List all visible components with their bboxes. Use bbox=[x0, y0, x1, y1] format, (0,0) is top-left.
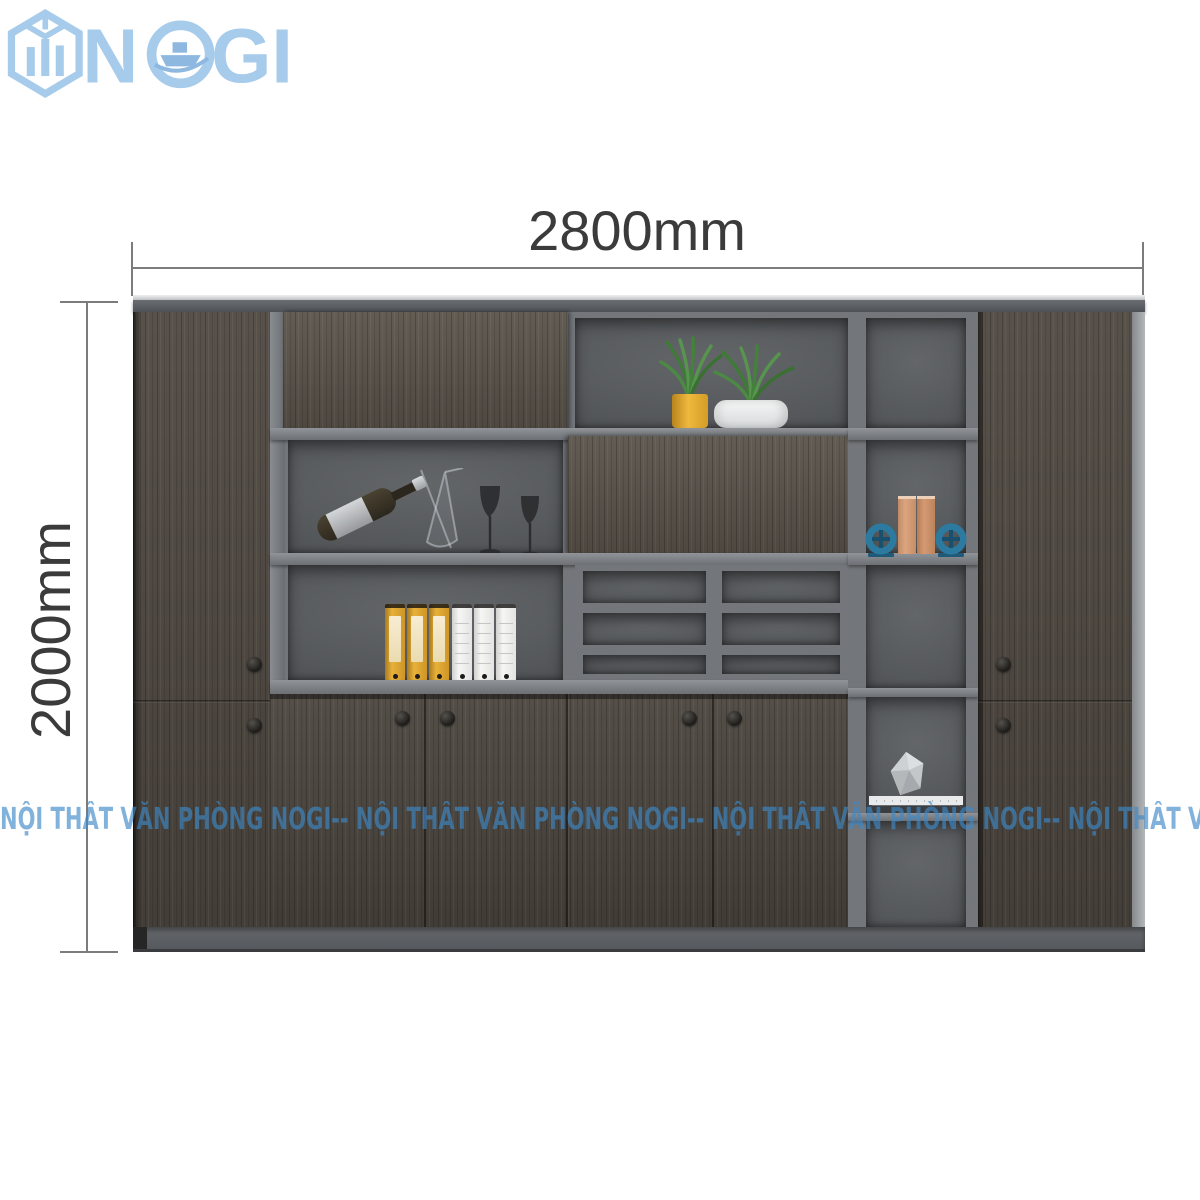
width-dimension-tick-right bbox=[1142, 242, 1144, 296]
height-dimension-line bbox=[86, 302, 88, 952]
product-image: N GI 2800mm 2000mm bbox=[0, 0, 1200, 1200]
book bbox=[898, 496, 916, 554]
door-knob bbox=[996, 657, 1011, 672]
door-top-shadow bbox=[270, 694, 856, 699]
watermark-band: NỘI THẤT VĂN PHÒNG NOGI-- NỘI THẤT VĂN P… bbox=[0, 801, 1200, 838]
cabinet-top-rail bbox=[133, 300, 1145, 312]
left-door-seam bbox=[133, 700, 270, 703]
logo-letter-n: N bbox=[82, 14, 138, 99]
width-dimension-tick-left bbox=[131, 242, 133, 296]
binder-white bbox=[474, 604, 494, 688]
display-cubby-empty bbox=[866, 318, 966, 428]
plant-in-white-pot bbox=[705, 344, 797, 404]
door-knob bbox=[996, 718, 1011, 733]
binder-hole bbox=[460, 674, 465, 679]
pigeonhole-slot bbox=[722, 571, 840, 603]
shelf-bar bbox=[848, 688, 978, 697]
shelf-bar bbox=[270, 680, 856, 694]
binder-hole bbox=[415, 674, 420, 679]
binder-hole bbox=[482, 674, 487, 679]
pigeonhole-grid bbox=[575, 565, 848, 680]
pigeonhole-slot bbox=[722, 613, 840, 645]
round-bookend bbox=[935, 522, 967, 558]
binder-hole bbox=[393, 674, 398, 679]
binder-hole bbox=[437, 674, 442, 679]
binder-white bbox=[452, 604, 472, 688]
binder-white bbox=[496, 604, 516, 688]
door-knob bbox=[440, 711, 455, 726]
door-knob bbox=[247, 657, 262, 672]
nogi-logo: N GI bbox=[5, 8, 295, 99]
yellow-plant-pot bbox=[672, 394, 708, 428]
wine-glass bbox=[477, 486, 503, 556]
logo-letters-gi: GI bbox=[211, 14, 293, 99]
plinth-bottom-edge bbox=[133, 949, 1145, 952]
binder-yellow bbox=[407, 604, 427, 688]
right-door-seam bbox=[978, 700, 1145, 703]
display-cubby-empty bbox=[866, 565, 966, 688]
door-knob bbox=[395, 711, 410, 726]
height-dimension-label: 2000mm bbox=[23, 520, 79, 740]
door-knob bbox=[247, 718, 262, 733]
middle-sliding-door bbox=[568, 436, 856, 555]
watermark-text: NỘI THẤT VĂN PHÒNG NOGI-- NỘI THẤT VĂN P… bbox=[0, 801, 1200, 838]
width-dimension-line bbox=[133, 267, 1143, 269]
pigeonhole-slot bbox=[583, 571, 706, 603]
pigeonhole-slot bbox=[583, 613, 706, 645]
binder-yellow bbox=[429, 604, 449, 688]
width-dimension-label: 2800mm bbox=[437, 198, 837, 263]
cabinet bbox=[133, 300, 1145, 954]
book bbox=[917, 496, 935, 554]
cabinet-plinth bbox=[133, 927, 1145, 952]
white-plant-pot bbox=[714, 400, 788, 428]
binder-hole bbox=[504, 674, 509, 679]
round-bookend bbox=[865, 522, 897, 558]
shelf-bar bbox=[270, 553, 856, 565]
ship-in-ring-icon bbox=[152, 25, 210, 83]
binder-yellow bbox=[385, 604, 405, 688]
shelf-bar bbox=[848, 428, 978, 440]
faceted-stone bbox=[886, 750, 930, 798]
pigeonhole-slot bbox=[583, 655, 706, 674]
wine-glass bbox=[518, 496, 542, 558]
nogi-logo-graphic: N GI bbox=[5, 8, 295, 99]
height-dimension-tick-top bbox=[60, 301, 118, 303]
door-knob bbox=[682, 711, 697, 726]
buildings-bars bbox=[27, 39, 64, 76]
pigeonhole-slot bbox=[722, 655, 840, 674]
height-dimension-tick-bottom bbox=[60, 951, 118, 953]
door-knob bbox=[727, 711, 742, 726]
top-sliding-door bbox=[283, 312, 568, 432]
